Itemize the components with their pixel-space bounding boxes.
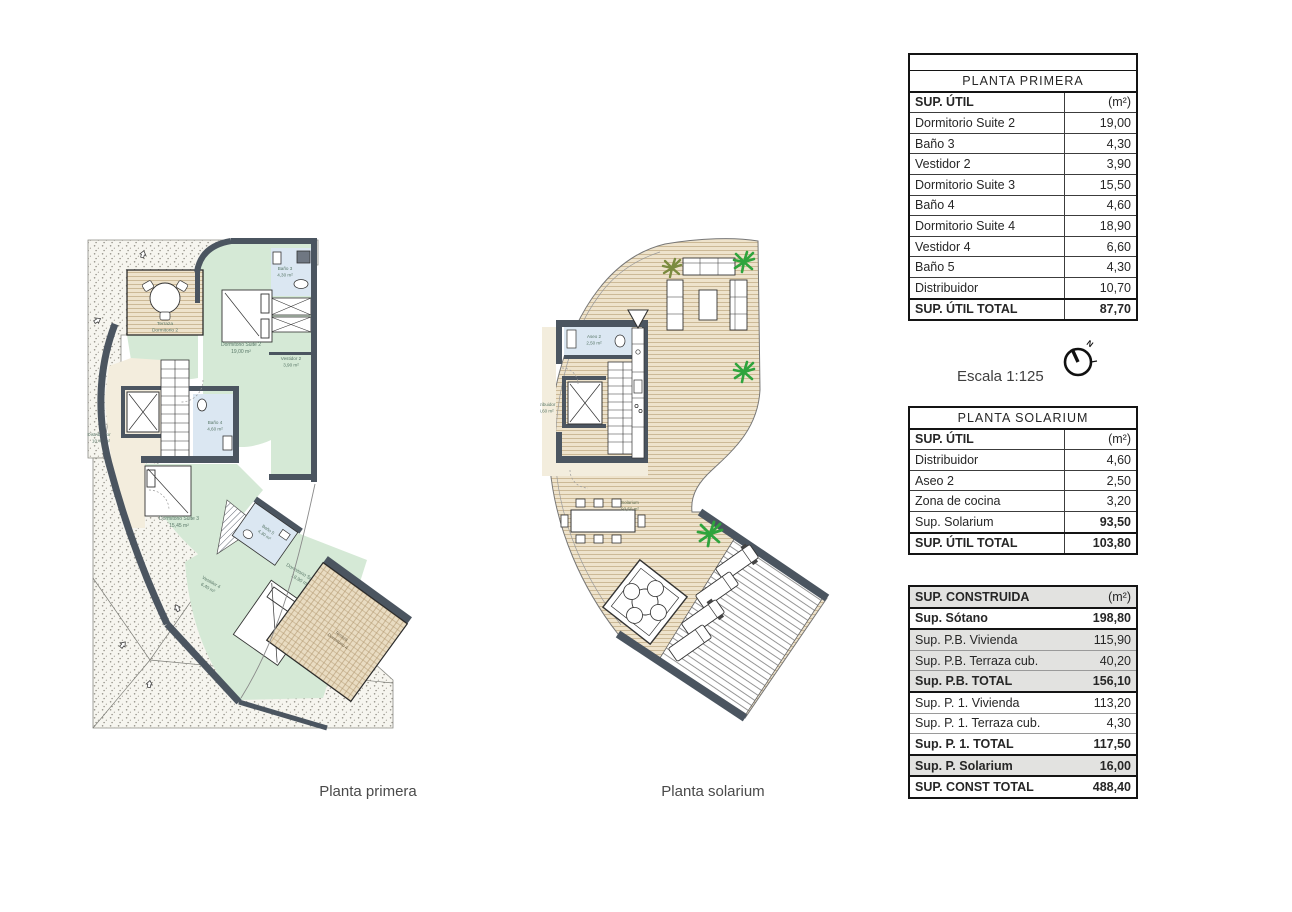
table-spacer-row (909, 54, 1137, 71)
caption-planta-solarium: Planta solarium (633, 783, 793, 800)
floor-plan-planta-solarium: Distribuidor 4,60 m² Aseo 2 2,50 m² (540, 222, 870, 742)
coffee-table-icon (699, 290, 717, 320)
elevator-icon (562, 376, 606, 428)
table-title-row: PLANTA PRIMERA (909, 71, 1137, 92)
table-sup-construida: SUP. CONSTRUIDA (m²) Sup. Sótano198,80 S… (908, 585, 1138, 799)
north-arrow-icon: N (1052, 333, 1106, 387)
room-label: 93,50 m² (621, 507, 639, 512)
room-label: Aseo 2 (587, 334, 602, 339)
table-total-row: SUP. CONST TOTAL488,40 (909, 776, 1137, 798)
elevator-icon (121, 386, 165, 438)
room-label: Dormitorio Suite 2 (221, 342, 261, 348)
table-planta-primera: PLANTA PRIMERA SUP. ÚTIL (m²) Dormitorio… (908, 53, 1138, 321)
table-row: Distribuidor10,70 (909, 277, 1137, 298)
room-label: Solarium (621, 500, 639, 505)
table-row: Vestidor 23,90 (909, 154, 1137, 175)
table-row: Sup. Solarium93,50 (909, 511, 1137, 532)
table-row: Zona de cocina3,20 (909, 491, 1137, 512)
kitchen-counter-icon (632, 328, 644, 458)
table-row: Sup. P.B. Terraza cub.40,20 (909, 650, 1137, 671)
room-label: Baño 4 (208, 420, 223, 425)
round-table-icon (150, 283, 180, 313)
stairs-icon (161, 360, 189, 458)
table-row: Sup. P.B. Vivienda115,90 (909, 629, 1137, 650)
room-label: Dormitorio Suite 3 (159, 516, 199, 522)
room-label: 4,60 m² (540, 409, 554, 414)
table-row: Dormitorio Suite 418,90 (909, 216, 1137, 237)
bed-icon (222, 290, 272, 342)
table-header-row: SUP. ÚTIL (m²) (909, 429, 1137, 450)
floor-plan-planta-primera: Terraza Dormitorio 2 Baño 3 4,30 m² Vest… (85, 228, 425, 734)
table-total-row: SUP. ÚTIL TOTAL 87,70 (909, 299, 1137, 321)
table-row: Dormitorio Suite 315,50 (909, 174, 1137, 195)
table-row: Sup. P. 1. TOTAL117,50 (909, 734, 1137, 755)
table-title: PLANTA SOLARIUM (909, 407, 1137, 429)
table-row: Vestidor 46,60 (909, 236, 1137, 257)
table-title-row: PLANTA SOLARIUM (909, 407, 1137, 429)
table-row: Aseo 22,50 (909, 470, 1137, 491)
room-distribuidor (542, 462, 648, 476)
room-label: Vestidor 2 (281, 356, 302, 361)
room-label: 4,60 m² (207, 427, 223, 432)
table-title: PLANTA PRIMERA (909, 71, 1137, 92)
table-row: Sup. Sótano198,80 (909, 608, 1137, 630)
scale-label: Escala 1:125 (957, 368, 1044, 385)
room-label: 15,45 m² (169, 523, 189, 529)
room-label: 2,50 m² (586, 341, 602, 346)
chair-icon (160, 312, 170, 320)
column-header: SUP. ÚTIL (909, 92, 1064, 113)
table-row: Baño 44,60 (909, 195, 1137, 216)
deck-terraza-dormitorio-2: Terraza Dormitorio 2 (127, 270, 203, 335)
room-label: 3,90 m² (283, 363, 299, 368)
caption-planta-primera: Planta primera (288, 783, 448, 800)
table-row: Baño 54,30 (909, 257, 1137, 278)
table-header-row: SUP. ÚTIL (m²) (909, 92, 1137, 113)
table-planta-solarium: PLANTA SOLARIUM SUP. ÚTIL (m²) Distribui… (908, 406, 1138, 555)
room-label: 4,30 m² (277, 273, 293, 278)
room-distribuidor (542, 327, 556, 470)
room-label: Dormitorio 2 (152, 328, 178, 334)
table-row: Sup. P. 1. Terraza cub.4,30 (909, 713, 1137, 734)
table-row: Sup. P. Solarium16,00 (909, 755, 1137, 777)
table-row: Dormitorio Suite 219,00 (909, 113, 1137, 134)
north-label: N (1085, 338, 1095, 349)
room-label: Distribuidor (87, 432, 111, 437)
table-header-row: SUP. CONSTRUIDA (m²) (909, 586, 1137, 608)
column-unit: (m²) (1064, 92, 1137, 113)
bed-icon (145, 466, 191, 516)
wall (195, 270, 200, 303)
table-row: Distribuidor4,60 (909, 450, 1137, 471)
room-label: Baño 3 (278, 266, 293, 271)
wardrobe-icon (271, 298, 311, 332)
table-total-row: SUP. ÚTIL TOTAL 103,80 (909, 533, 1137, 555)
room-label: 19,00 m² (231, 349, 251, 355)
column-header: SUP. ÚTIL (909, 429, 1064, 450)
table-row: Baño 34,30 (909, 133, 1137, 154)
column-unit: (m²) (1064, 586, 1137, 608)
room-label: Terraza (157, 321, 173, 327)
column-header: SUP. CONSTRUIDA (909, 586, 1064, 608)
table-row: Sup. P.B. TOTAL156,10 (909, 671, 1137, 692)
room-label: Distribuidor (540, 402, 556, 407)
table-row: Sup. P. 1. Vivienda113,20 (909, 692, 1137, 713)
plan-sheet: { "captions": { "left_plan": "Planta pri… (0, 0, 1292, 912)
column-unit: (m²) (1064, 429, 1137, 450)
